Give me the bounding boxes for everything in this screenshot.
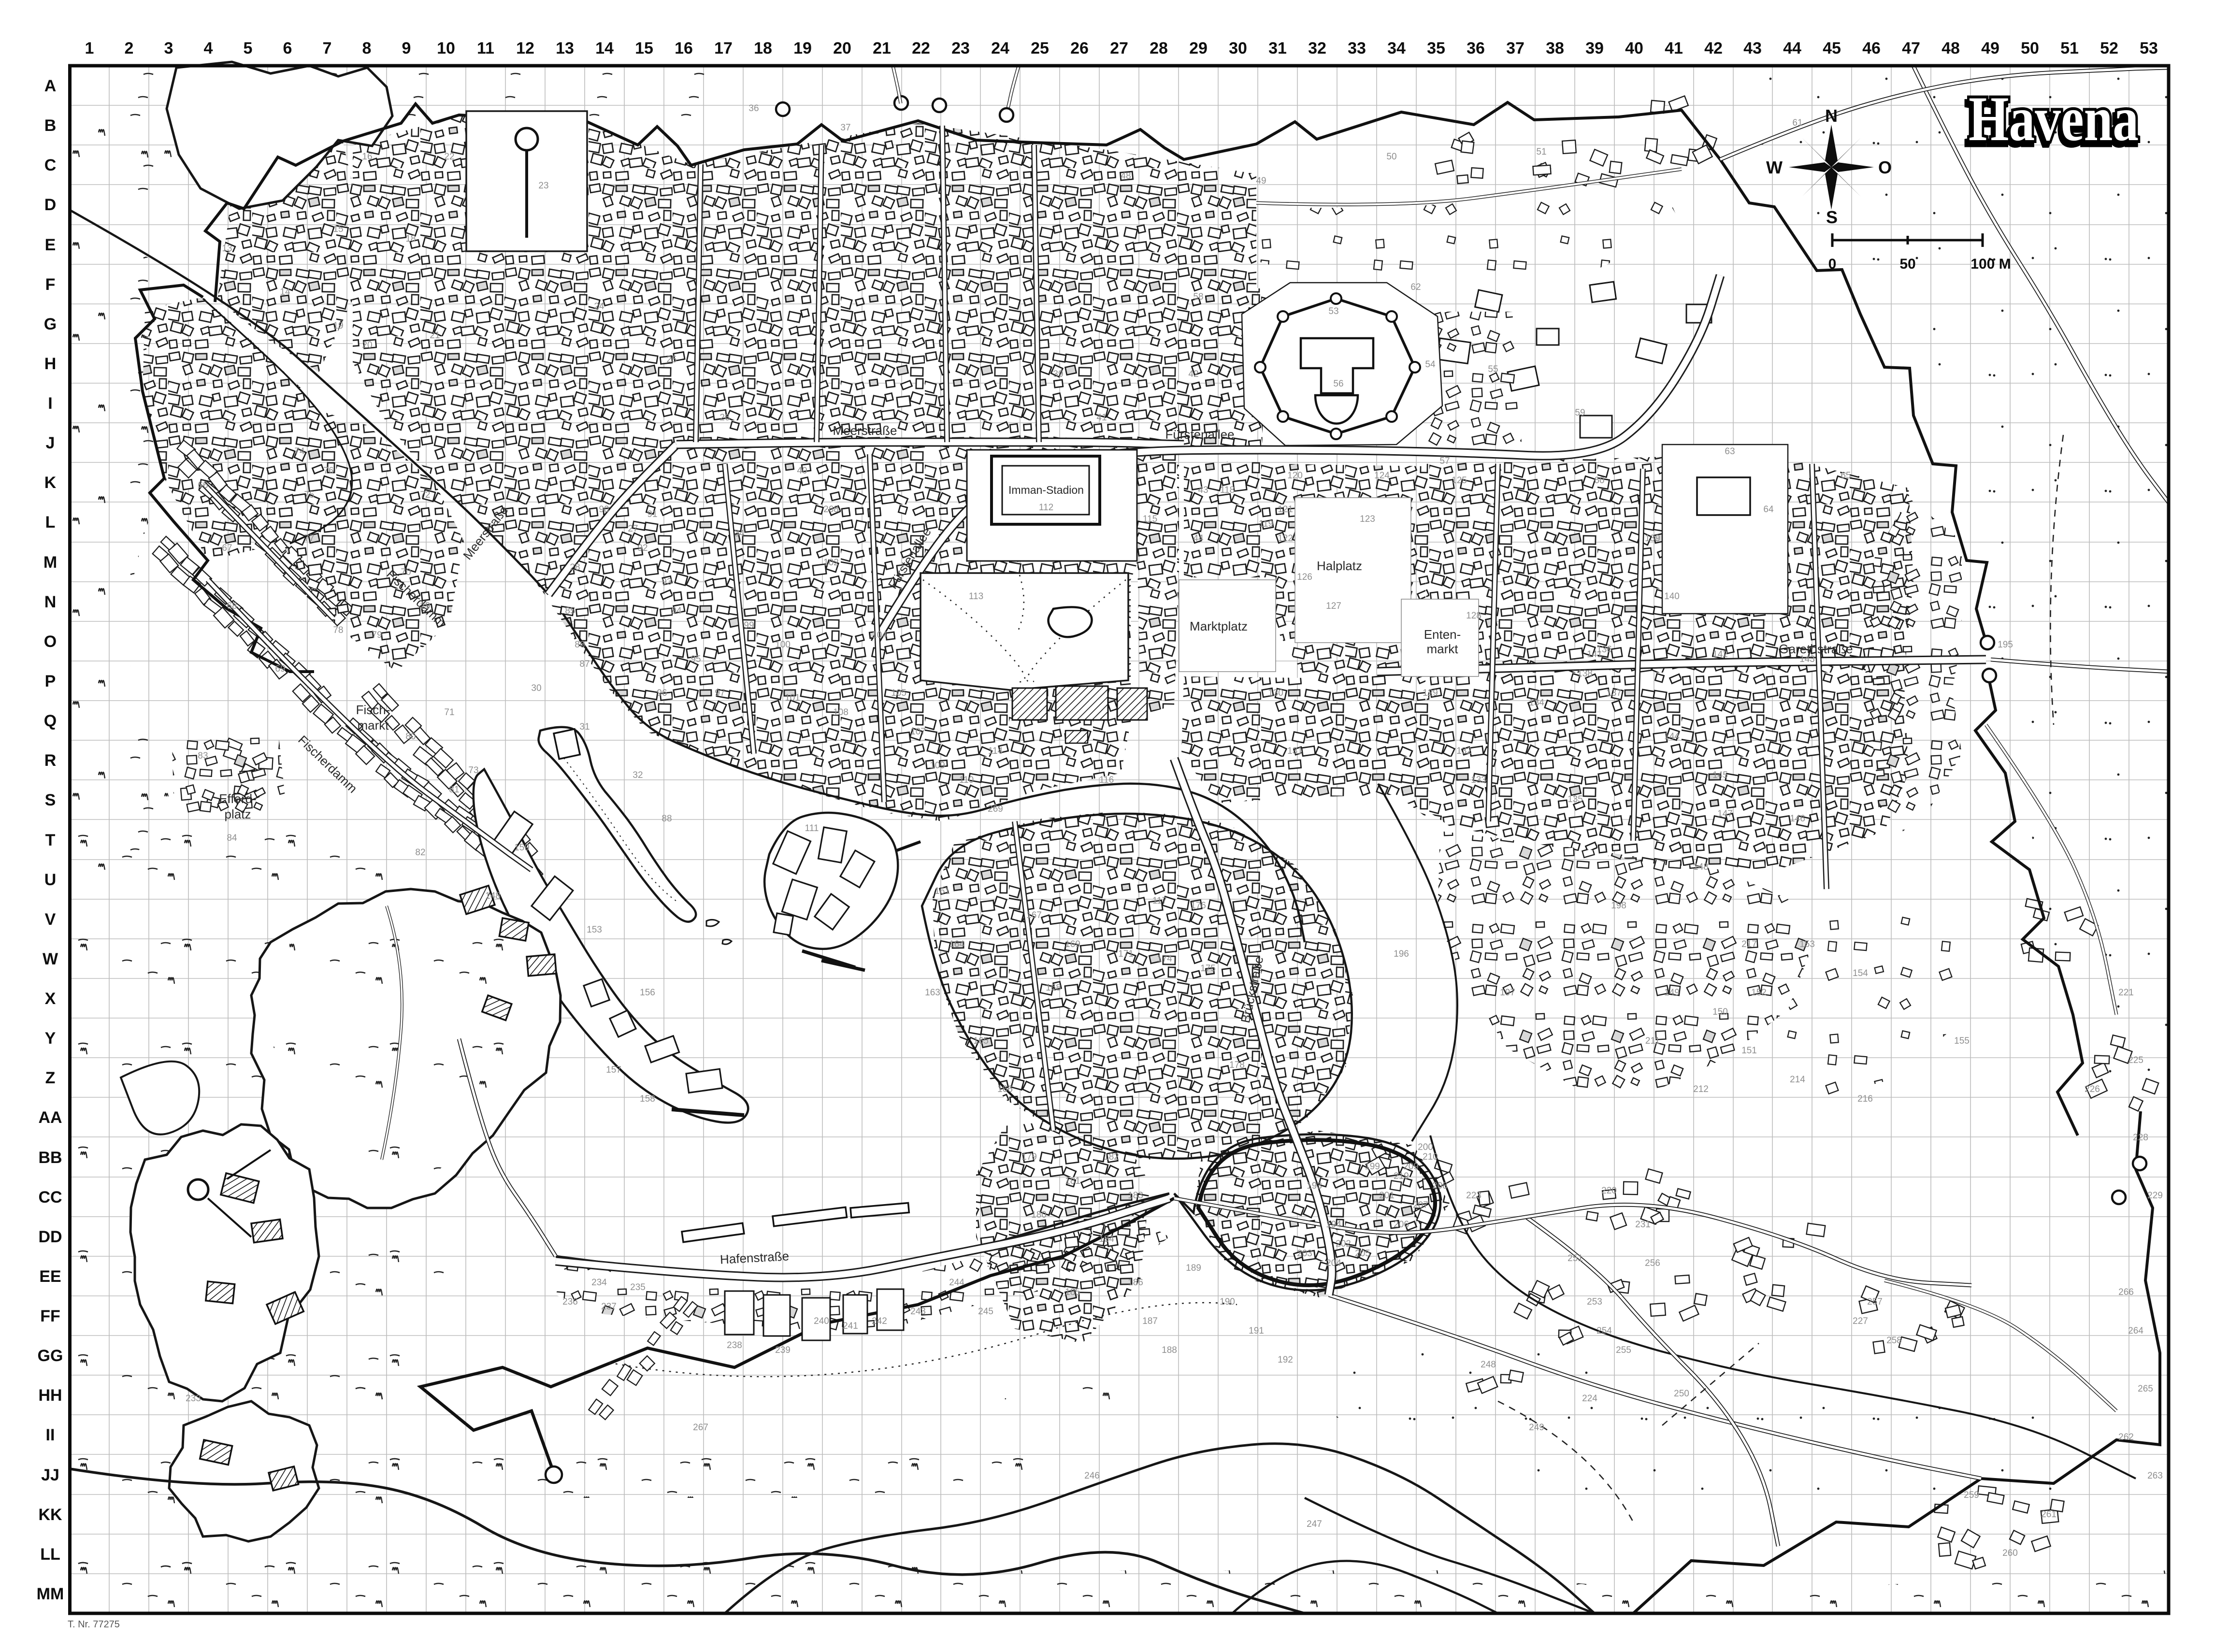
svg-text:18: 18: [754, 39, 772, 57]
svg-text:155: 155: [1954, 1036, 1970, 1046]
svg-text:105: 105: [891, 688, 906, 698]
svg-text:238: 238: [727, 1340, 742, 1350]
svg-text:115: 115: [1143, 514, 1157, 524]
svg-text:50: 50: [1386, 152, 1396, 162]
svg-text:127: 127: [1326, 601, 1341, 611]
svg-text:200: 200: [1418, 1142, 1433, 1152]
svg-text:51: 51: [2060, 39, 2079, 57]
svg-text:53: 53: [2140, 39, 2158, 57]
svg-text:markt: markt: [358, 718, 389, 733]
svg-text:187: 187: [1142, 1316, 1158, 1326]
svg-text:30: 30: [531, 683, 541, 693]
svg-text:37: 37: [1506, 39, 1525, 57]
svg-text:28: 28: [1150, 39, 1168, 57]
svg-text:R: R: [44, 751, 57, 770]
svg-text:130: 130: [1268, 688, 1283, 698]
svg-text:37: 37: [840, 123, 850, 133]
svg-text:101: 101: [785, 693, 800, 703]
svg-text:199: 199: [1365, 1162, 1380, 1172]
svg-text:225: 225: [2128, 1055, 2143, 1065]
svg-text:83: 83: [198, 751, 208, 761]
svg-text:182: 182: [1104, 1152, 1119, 1162]
svg-text:50: 50: [1899, 256, 1915, 272]
svg-text:62: 62: [1410, 282, 1421, 292]
svg-text:263: 263: [2147, 1471, 2163, 1481]
svg-text:157: 157: [606, 1065, 621, 1075]
svg-text:Z: Z: [45, 1069, 56, 1087]
svg-text:26: 26: [719, 413, 730, 423]
svg-text:96: 96: [657, 688, 667, 698]
svg-text:25: 25: [1031, 39, 1049, 57]
svg-text:191: 191: [1249, 1326, 1264, 1336]
svg-text:DD: DD: [38, 1228, 62, 1246]
svg-text:28: 28: [570, 562, 580, 573]
svg-text:13: 13: [222, 244, 232, 254]
svg-text:220: 220: [1601, 1186, 1617, 1196]
svg-text:137: 137: [1606, 688, 1622, 698]
svg-text:140: 140: [1664, 591, 1680, 602]
svg-text:E: E: [45, 236, 56, 254]
svg-text:265: 265: [2138, 1384, 2153, 1394]
svg-text:88: 88: [662, 814, 672, 824]
svg-text:126: 126: [1297, 572, 1312, 582]
svg-text:233: 233: [186, 1393, 201, 1404]
svg-text:N: N: [1825, 106, 1838, 126]
svg-text:AA: AA: [38, 1108, 62, 1127]
svg-text:S: S: [1826, 207, 1838, 227]
svg-text:240: 240: [814, 1316, 829, 1326]
svg-text:66: 66: [198, 480, 208, 490]
svg-text:120: 120: [1287, 471, 1303, 481]
svg-text:65: 65: [1841, 471, 1851, 481]
svg-text:122: 122: [1278, 533, 1293, 544]
svg-text:167: 167: [1026, 910, 1042, 920]
svg-text:44: 44: [1193, 533, 1204, 544]
svg-text:Fürstenallee: Fürstenallee: [1165, 427, 1234, 442]
svg-text:253: 253: [1587, 1297, 1602, 1307]
svg-text:36: 36: [1467, 39, 1485, 57]
svg-text:197: 197: [1500, 988, 1515, 998]
svg-text:11: 11: [477, 39, 494, 57]
svg-text:I: I: [48, 394, 52, 413]
svg-text:161: 161: [935, 886, 950, 896]
svg-text:60: 60: [1594, 475, 1604, 486]
svg-text:A: A: [44, 77, 57, 95]
svg-text:20: 20: [833, 39, 851, 57]
svg-text:22: 22: [444, 152, 454, 162]
svg-text:27: 27: [1110, 39, 1128, 57]
svg-text:7: 7: [323, 39, 332, 57]
svg-text:217: 217: [1741, 939, 1757, 949]
svg-text:47: 47: [1902, 39, 1920, 57]
svg-text:142: 142: [1712, 649, 1728, 660]
svg-text:0: 0: [1828, 256, 1837, 272]
svg-text:228: 228: [2133, 1133, 2148, 1143]
svg-text:99: 99: [744, 620, 754, 631]
svg-text:133: 133: [1471, 775, 1486, 785]
svg-text:81: 81: [449, 785, 459, 795]
svg-text:53: 53: [1328, 306, 1338, 316]
svg-text:74: 74: [294, 446, 305, 457]
svg-text:112: 112: [1039, 503, 1053, 513]
svg-text:183: 183: [1128, 1191, 1143, 1201]
svg-text:Imman-Stadion: Imman-Stadion: [1008, 484, 1084, 496]
svg-text:121: 121: [1278, 504, 1293, 515]
svg-text:38: 38: [1546, 39, 1564, 57]
svg-text:GG: GG: [38, 1347, 63, 1365]
svg-text:147: 147: [1717, 809, 1733, 819]
svg-text:268: 268: [823, 504, 839, 515]
svg-text:205: 205: [1355, 1249, 1370, 1259]
svg-text:3: 3: [164, 39, 173, 57]
svg-text:42: 42: [1704, 39, 1723, 57]
svg-text:129: 129: [1423, 688, 1438, 698]
svg-text:119: 119: [1259, 519, 1273, 529]
svg-text:markt: markt: [1427, 642, 1459, 656]
svg-text:109: 109: [930, 761, 945, 771]
svg-text:27: 27: [628, 524, 638, 534]
svg-text:4: 4: [204, 39, 213, 57]
svg-text:224: 224: [1582, 1393, 1597, 1404]
svg-text:32: 32: [633, 770, 643, 780]
svg-text:49: 49: [1256, 176, 1266, 186]
svg-text:X: X: [45, 990, 56, 1008]
svg-text:80: 80: [405, 732, 416, 742]
svg-text:203: 203: [1297, 1249, 1312, 1259]
svg-text:35: 35: [1427, 39, 1445, 57]
svg-text:171: 171: [1118, 949, 1134, 959]
svg-text:255: 255: [1616, 1345, 1631, 1355]
svg-text:19: 19: [333, 321, 343, 331]
svg-text:Fisch-: Fisch-: [356, 703, 390, 717]
svg-text:153: 153: [1799, 939, 1815, 949]
svg-text:EE: EE: [39, 1267, 61, 1286]
svg-text:D: D: [44, 196, 57, 214]
svg-text:5: 5: [244, 39, 253, 57]
svg-text:178: 178: [1229, 1060, 1245, 1070]
svg-text:206: 206: [1394, 1220, 1409, 1230]
svg-text:Garethstraße: Garethstraße: [1779, 642, 1853, 656]
svg-text:K: K: [44, 474, 57, 492]
svg-text:193: 193: [1307, 1181, 1322, 1191]
svg-text:242: 242: [872, 1316, 887, 1326]
svg-text:79: 79: [372, 630, 382, 640]
svg-text:31: 31: [579, 722, 590, 732]
svg-text:267: 267: [693, 1422, 708, 1433]
svg-text:86: 86: [575, 640, 585, 650]
svg-text:6: 6: [283, 39, 292, 57]
svg-text:73: 73: [468, 765, 478, 776]
svg-text:W: W: [1766, 158, 1783, 177]
svg-text:250: 250: [1674, 1389, 1689, 1399]
svg-text:31: 31: [1268, 39, 1287, 57]
svg-text:226: 226: [2085, 1084, 2100, 1094]
svg-text:134: 134: [1529, 698, 1544, 708]
svg-text:87: 87: [579, 659, 590, 669]
svg-text:51: 51: [1536, 147, 1546, 157]
svg-text:188: 188: [1162, 1345, 1177, 1355]
svg-text:246: 246: [1084, 1471, 1100, 1481]
svg-text:181: 181: [1065, 1176, 1080, 1186]
svg-text:179: 179: [1021, 1152, 1037, 1162]
svg-text:77: 77: [304, 533, 314, 544]
svg-text:33: 33: [1348, 39, 1366, 57]
svg-text:249: 249: [1529, 1422, 1544, 1433]
svg-text:59: 59: [1575, 408, 1585, 418]
svg-text:204: 204: [1326, 1258, 1341, 1268]
svg-text:41: 41: [1096, 413, 1107, 423]
svg-text:55: 55: [1488, 364, 1498, 374]
svg-text:163: 163: [925, 988, 940, 998]
svg-text:118: 118: [1220, 485, 1235, 495]
svg-text:159: 159: [514, 843, 530, 853]
svg-text:39: 39: [1053, 369, 1063, 379]
svg-text:241: 241: [843, 1321, 858, 1331]
svg-text:HH: HH: [38, 1386, 62, 1405]
svg-text:227: 227: [1853, 1316, 1868, 1326]
svg-text:189: 189: [1186, 1263, 1201, 1273]
svg-text:36: 36: [748, 103, 759, 114]
svg-text:237: 237: [601, 1302, 617, 1312]
svg-text:125: 125: [1452, 475, 1467, 486]
svg-text:78: 78: [333, 625, 343, 635]
svg-text:V: V: [45, 910, 56, 929]
svg-text:264: 264: [2128, 1326, 2143, 1336]
svg-text:42: 42: [1188, 369, 1198, 379]
svg-text:CC: CC: [38, 1188, 62, 1207]
svg-text:244: 244: [949, 1278, 964, 1288]
svg-text:21: 21: [430, 330, 440, 341]
svg-text:29: 29: [1189, 39, 1208, 57]
svg-text:70: 70: [401, 567, 411, 577]
svg-text:15: 15: [333, 224, 343, 234]
svg-text:149: 149: [1664, 988, 1680, 998]
svg-text:261: 261: [2041, 1509, 2057, 1520]
svg-text:75: 75: [304, 490, 314, 500]
svg-text:KK: KK: [38, 1506, 62, 1524]
svg-text:258: 258: [1886, 1336, 1902, 1346]
svg-text:132: 132: [1456, 746, 1472, 756]
svg-text:202: 202: [1336, 1239, 1351, 1249]
svg-text:17: 17: [714, 39, 733, 57]
svg-text:212: 212: [1693, 1084, 1709, 1094]
svg-text:100 M: 100 M: [1970, 256, 2011, 272]
svg-text:Enten-: Enten-: [1424, 627, 1461, 642]
svg-text:269: 269: [988, 804, 1003, 814]
svg-text:34: 34: [734, 529, 745, 539]
svg-text:57: 57: [1439, 456, 1450, 466]
svg-text:91: 91: [647, 509, 657, 519]
svg-text:P: P: [45, 672, 56, 690]
svg-text:B: B: [44, 116, 57, 135]
svg-text:117: 117: [1152, 896, 1167, 906]
svg-text:221: 221: [2118, 988, 2134, 998]
svg-text:9: 9: [402, 39, 411, 57]
svg-text:231: 231: [1635, 1220, 1651, 1230]
svg-text:Y: Y: [45, 1029, 56, 1048]
svg-text:41: 41: [1665, 39, 1683, 57]
svg-text:54: 54: [1425, 359, 1436, 370]
svg-text:T. Nr. 77275: T. Nr. 77275: [68, 1619, 120, 1630]
svg-text:247: 247: [1307, 1519, 1322, 1529]
svg-text:146: 146: [1790, 814, 1805, 824]
svg-text:10: 10: [437, 39, 455, 57]
svg-text:150: 150: [1712, 1007, 1728, 1017]
svg-text:48: 48: [1121, 171, 1131, 181]
svg-text:20: 20: [362, 340, 372, 350]
svg-text:25: 25: [666, 355, 676, 365]
svg-text:2: 2: [125, 39, 134, 57]
svg-text:Meerstraße: Meerstraße: [833, 423, 897, 438]
svg-text:195: 195: [1998, 640, 2013, 650]
svg-text:69: 69: [275, 664, 285, 674]
svg-text:175: 175: [1200, 963, 1216, 974]
svg-text:254: 254: [1597, 1326, 1612, 1336]
svg-text:19: 19: [793, 39, 812, 57]
svg-text:257: 257: [1867, 1297, 1883, 1307]
svg-text:245: 245: [978, 1307, 993, 1317]
svg-text:BB: BB: [38, 1149, 62, 1167]
svg-text:251: 251: [1568, 1253, 1583, 1264]
svg-text:201: 201: [1379, 1191, 1395, 1201]
svg-text:104: 104: [872, 630, 887, 640]
svg-text:56: 56: [1333, 379, 1343, 389]
svg-text:209: 209: [1403, 1162, 1419, 1172]
svg-text:153: 153: [587, 925, 602, 935]
svg-text:164: 164: [949, 939, 964, 949]
svg-text:210: 210: [1423, 1152, 1438, 1162]
svg-text:Marktplatz: Marktplatz: [1190, 619, 1248, 633]
svg-text:229: 229: [2147, 1191, 2163, 1201]
svg-text:180: 180: [1031, 1210, 1047, 1220]
svg-text:128: 128: [1466, 611, 1481, 621]
svg-text:84: 84: [227, 833, 237, 843]
svg-text:C: C: [44, 156, 57, 174]
svg-text:24: 24: [991, 39, 1009, 57]
svg-text:131: 131: [1287, 746, 1303, 756]
svg-text:16: 16: [362, 152, 372, 162]
svg-text:68: 68: [227, 601, 237, 611]
svg-text:248: 248: [1481, 1360, 1496, 1370]
svg-text:FF: FF: [40, 1307, 60, 1325]
svg-text:14: 14: [280, 287, 290, 297]
svg-text:43: 43: [1198, 485, 1208, 495]
svg-text:O: O: [1878, 158, 1892, 177]
svg-text:158: 158: [640, 1094, 655, 1104]
svg-text:211: 211: [1645, 1036, 1660, 1046]
svg-text:Halplatz: Halplatz: [1317, 559, 1362, 573]
svg-text:22: 22: [912, 39, 930, 57]
svg-text:platz: platz: [225, 807, 251, 821]
svg-text:116: 116: [1099, 775, 1114, 785]
svg-text:169: 169: [1065, 939, 1080, 949]
svg-text:194: 194: [1326, 1220, 1341, 1230]
svg-text:151: 151: [1741, 1046, 1757, 1056]
svg-text:J: J: [46, 434, 55, 452]
svg-text:50: 50: [2021, 39, 2039, 57]
svg-text:Q: Q: [44, 712, 57, 730]
svg-text:O: O: [44, 632, 57, 651]
svg-text:8: 8: [362, 39, 372, 57]
svg-text:185: 185: [1065, 1287, 1080, 1297]
svg-text:135: 135: [1568, 794, 1583, 804]
svg-text:208: 208: [1432, 1181, 1448, 1191]
svg-text:243: 243: [910, 1307, 926, 1317]
svg-text:216: 216: [1857, 1094, 1873, 1104]
svg-text:124: 124: [1374, 471, 1390, 481]
svg-text:239: 239: [775, 1345, 791, 1355]
svg-text:29: 29: [420, 601, 430, 611]
svg-text:N: N: [44, 593, 57, 611]
svg-text:23: 23: [951, 39, 970, 57]
svg-text:168: 168: [1046, 983, 1061, 993]
svg-text:234: 234: [591, 1278, 607, 1288]
svg-text:1: 1: [85, 39, 94, 57]
svg-text:166: 166: [997, 1084, 1013, 1094]
svg-text:141: 141: [1587, 649, 1602, 660]
svg-text:W: W: [43, 950, 58, 968]
svg-text:82: 82: [415, 848, 425, 858]
svg-text:176: 176: [1191, 901, 1206, 911]
svg-text:260: 260: [2002, 1548, 2018, 1558]
svg-text:236: 236: [562, 1297, 578, 1307]
svg-text:H: H: [44, 355, 57, 373]
svg-text:139: 139: [1645, 533, 1660, 544]
svg-text:152: 152: [1751, 988, 1767, 998]
svg-text:Efferd-: Efferd-: [219, 791, 257, 806]
svg-text:F: F: [45, 275, 56, 294]
svg-text:21: 21: [873, 39, 891, 57]
svg-text:102: 102: [823, 558, 839, 568]
svg-text:186: 186: [1128, 1278, 1143, 1288]
svg-text:Havena: Havena: [1969, 83, 2139, 154]
svg-text:58: 58: [1193, 292, 1203, 302]
svg-text:259: 259: [1964, 1490, 1979, 1500]
svg-text:18: 18: [405, 234, 416, 244]
svg-text:44: 44: [1783, 39, 1801, 57]
svg-text:256: 256: [1645, 1258, 1660, 1268]
svg-text:143: 143: [1799, 654, 1815, 664]
svg-text:23: 23: [538, 181, 548, 191]
svg-text:123: 123: [1360, 514, 1375, 524]
svg-text:12: 12: [516, 39, 534, 57]
svg-text:174: 174: [1157, 954, 1172, 964]
svg-text:148: 148: [1693, 862, 1709, 872]
svg-text:223: 223: [1466, 1191, 1481, 1201]
svg-text:L: L: [45, 513, 56, 532]
svg-text:45: 45: [1823, 39, 1841, 57]
svg-text:JJ: JJ: [41, 1466, 59, 1484]
svg-text:214: 214: [1790, 1075, 1805, 1085]
svg-text:85: 85: [565, 606, 575, 616]
svg-text:148: 148: [485, 891, 501, 901]
svg-text:114: 114: [988, 746, 1003, 756]
svg-text:S: S: [45, 791, 56, 809]
svg-text:90: 90: [599, 504, 609, 515]
svg-text:266: 266: [2118, 1287, 2134, 1297]
svg-text:196: 196: [1394, 949, 1409, 959]
svg-text:93: 93: [662, 577, 672, 587]
svg-text:95: 95: [690, 654, 701, 664]
svg-text:111: 111: [805, 823, 819, 833]
svg-text:24: 24: [594, 302, 604, 312]
svg-text:110: 110: [959, 775, 974, 785]
svg-text:108: 108: [833, 707, 849, 718]
svg-text:34: 34: [1387, 39, 1406, 57]
svg-text:40: 40: [797, 466, 807, 476]
svg-text:T: T: [45, 831, 56, 849]
svg-text:92: 92: [637, 543, 647, 553]
